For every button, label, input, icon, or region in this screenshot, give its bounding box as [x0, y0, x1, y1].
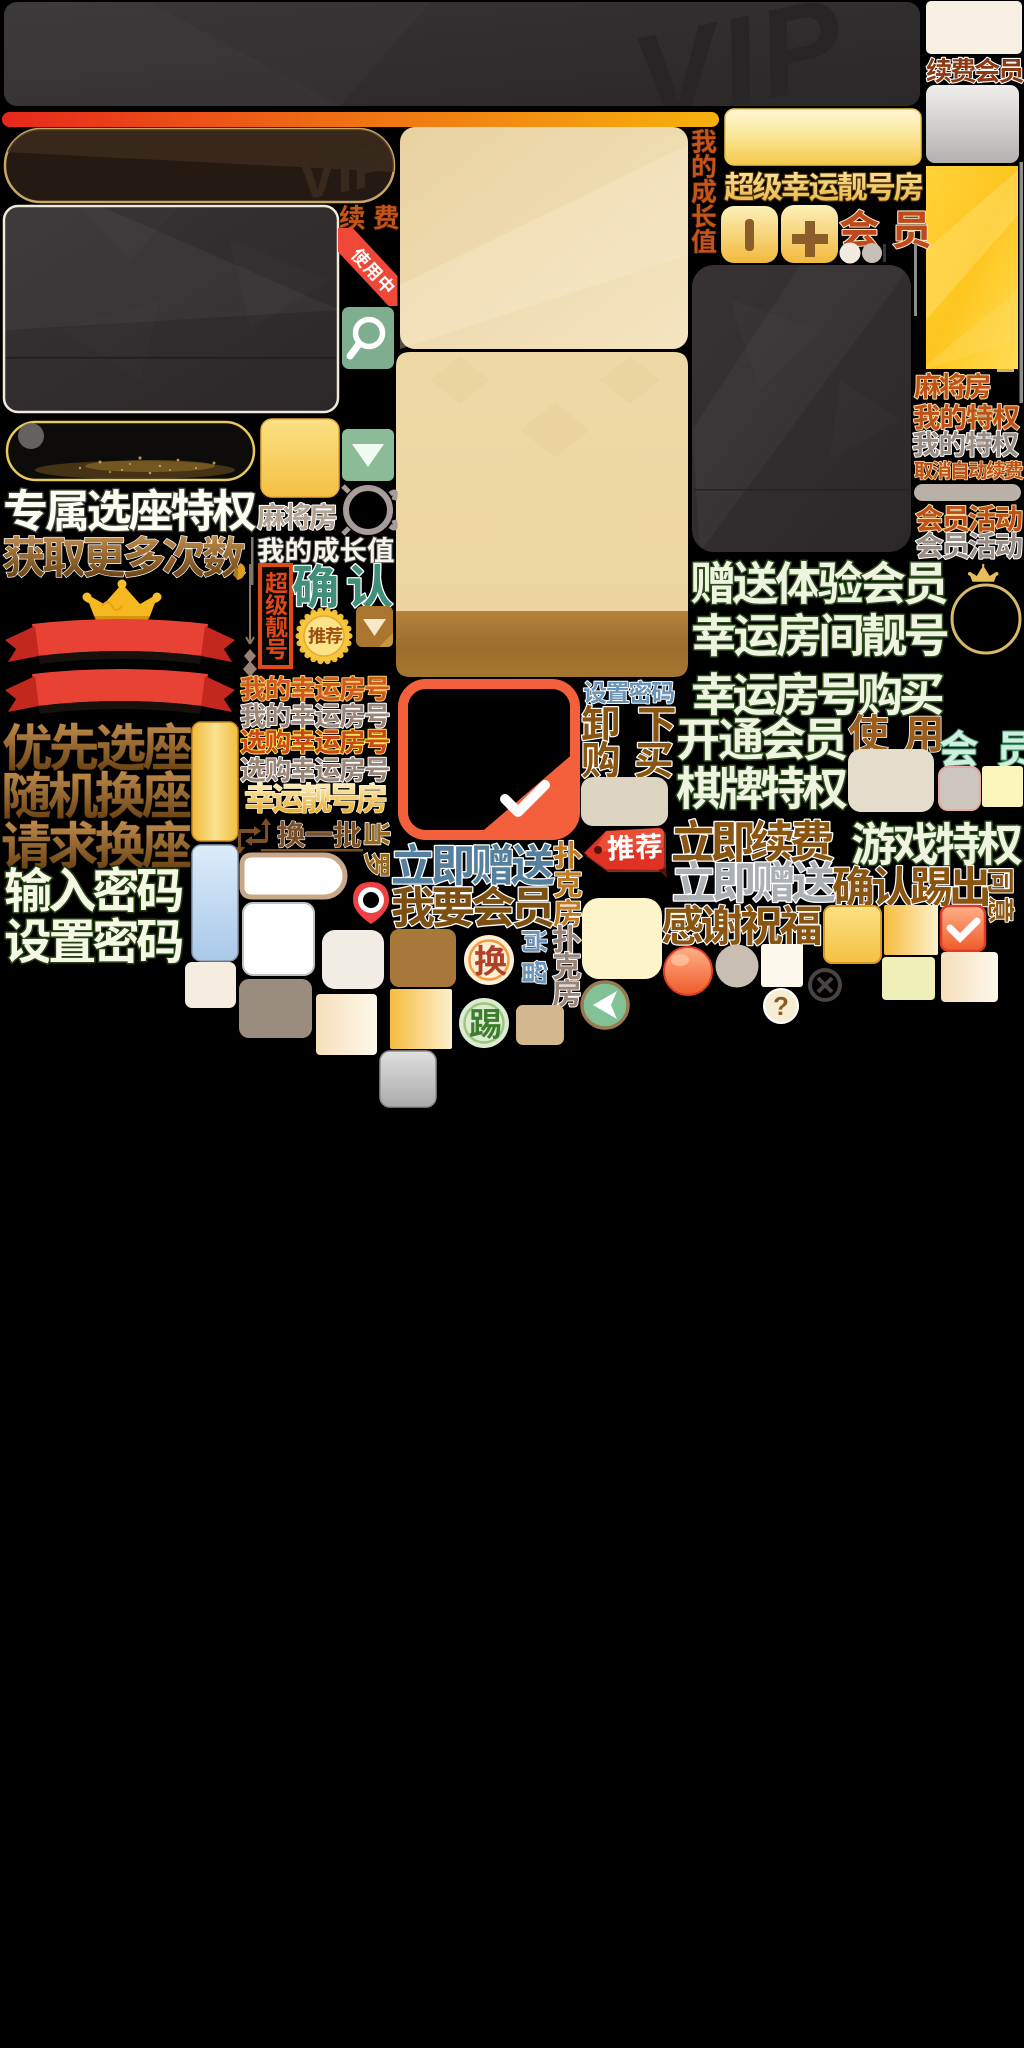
svg-text:?: ?: [773, 991, 789, 1021]
